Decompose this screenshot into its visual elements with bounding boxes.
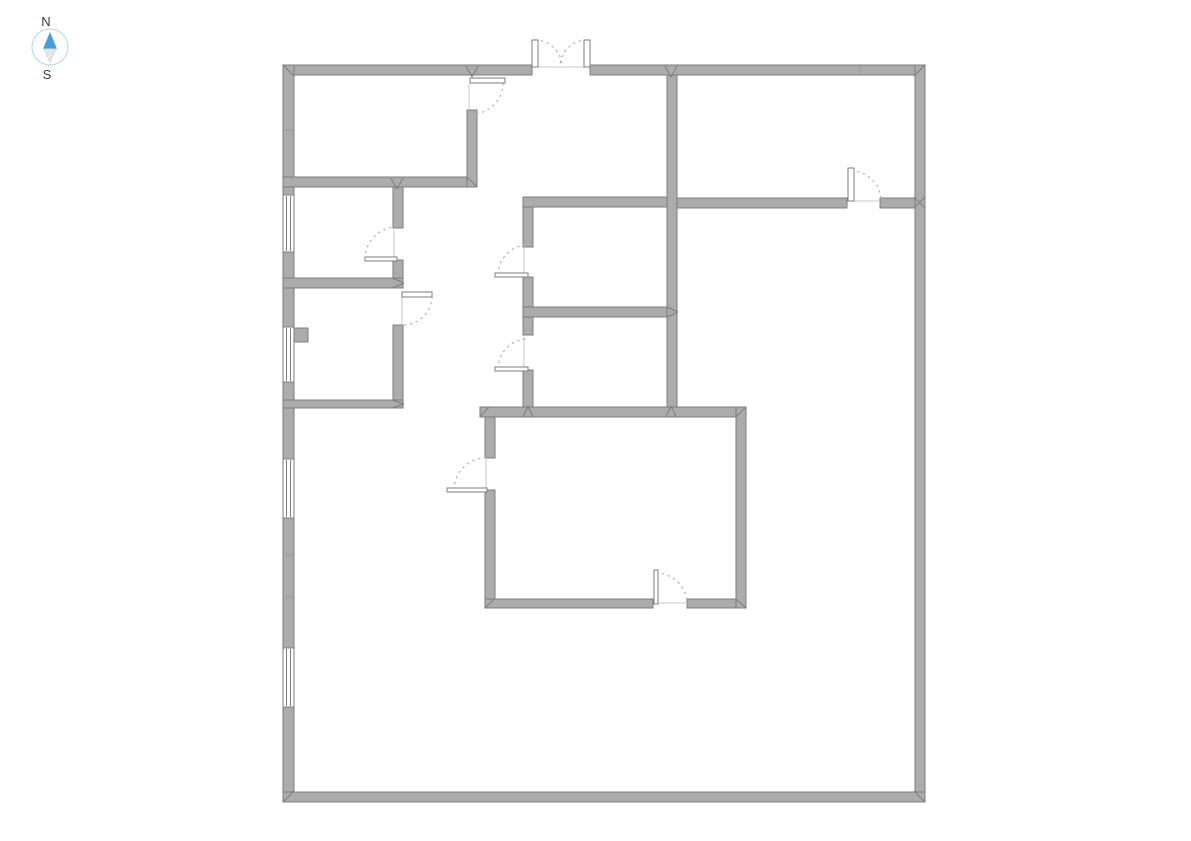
big-room-left-upper [485, 417, 495, 458]
room1-bottom-wall [283, 177, 477, 187]
floor-plan [283, 40, 925, 802]
center-room2-left-upper [523, 317, 533, 335]
door-leaf [470, 78, 505, 83]
door-center-room2 [495, 337, 528, 371]
right-room-bottom-right [880, 198, 915, 208]
big-room-bottom-left [485, 599, 653, 608]
compass-south-label: S [43, 67, 52, 82]
double-door-right [560, 40, 590, 67]
outer-wall-top-left [283, 65, 532, 75]
door-leaf [495, 273, 528, 277]
room3-right-wall [393, 325, 403, 404]
center-room-left-lower [523, 277, 533, 307]
window-left-2 [283, 327, 294, 382]
door-swing-arc [472, 83, 503, 114]
big-room-left-lower [485, 490, 495, 599]
room3-bottom-wall [283, 400, 403, 408]
door-leaf [654, 570, 658, 604]
big-room-right-wall [736, 407, 746, 608]
door-room3 [402, 292, 432, 325]
window-left-3 [283, 459, 294, 518]
center-room2-left-lower [523, 370, 533, 407]
door-swing-arc [403, 296, 432, 325]
outer-wall-top-right [590, 65, 925, 75]
door-leaf [584, 40, 590, 67]
window-left-4 [283, 648, 294, 707]
compass: N S [32, 14, 68, 82]
window-left-1 [283, 195, 294, 252]
main-vertical-wall [667, 75, 677, 407]
door-swing-arc [454, 458, 486, 490]
door-big-room-bottom [654, 570, 687, 604]
right-room-bottom-left [677, 198, 847, 208]
door-leaf [495, 367, 528, 371]
door-swing-arc [365, 227, 397, 259]
door-big-room-left [447, 458, 487, 492]
door-leaf [848, 168, 854, 201]
floor-plan-page: N S [0, 0, 1191, 841]
double-door-left [532, 40, 584, 67]
door-swing-arc [656, 573, 687, 604]
door-room1 [469, 78, 505, 114]
outer-wall-bottom [283, 792, 925, 802]
outer-wall-right [915, 65, 925, 802]
door-leaf [402, 292, 432, 297]
door-right-room [848, 168, 881, 201]
compass-north-label: N [41, 14, 50, 29]
big-room-top-wall [480, 407, 746, 417]
center-room-left-stub [523, 207, 533, 247]
room1-right-wall [467, 110, 477, 187]
center-room-top-wall [523, 197, 667, 207]
door-room2 [365, 227, 397, 261]
door-leaf [365, 257, 397, 261]
door-leaf [532, 40, 538, 67]
door-swing-arc [560, 40, 587, 67]
floor-plan-canvas: N S [0, 0, 1191, 841]
door-leaf [447, 488, 487, 492]
door-center-room1 [495, 245, 528, 277]
door-swing-arc [851, 171, 881, 201]
wall-pier [294, 328, 308, 342]
room2-right-wall-upper [393, 187, 403, 228]
room2-bottom-wall [283, 278, 403, 288]
door-swing-arc [535, 40, 562, 67]
center-divider-wall [523, 307, 677, 317]
